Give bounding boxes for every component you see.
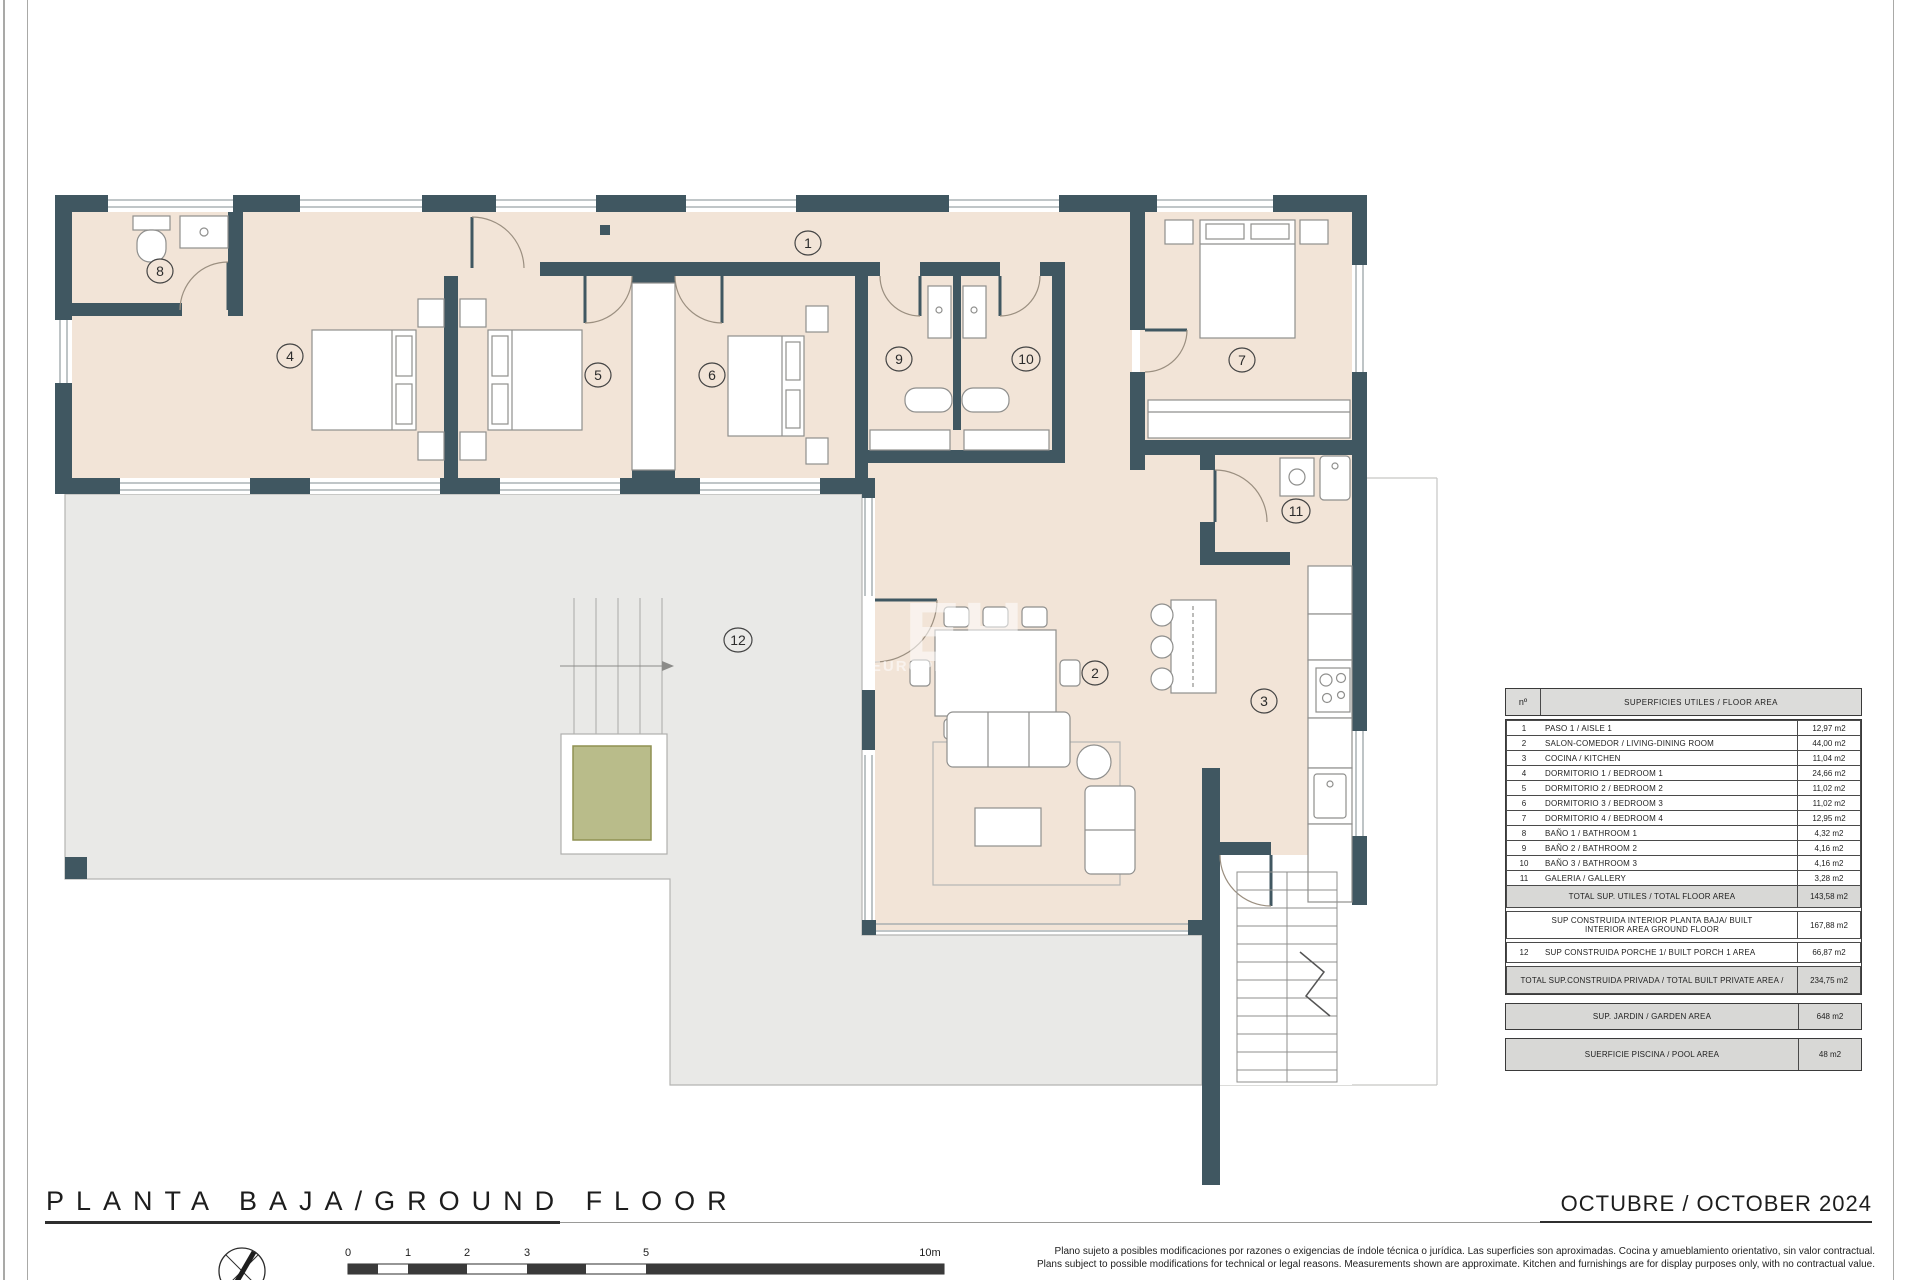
stool [1151, 636, 1173, 658]
nightstand [460, 299, 486, 327]
legend-built-interior: SUP CONSTRUIDA INTERIOR PLANTA BAJA/ BUI… [1506, 911, 1861, 939]
svg-text:11: 11 [1289, 503, 1304, 519]
legend-row: 7DORMITORIO 4 / BEDROOM 412,95 m2 [1506, 810, 1861, 826]
room-marker-6: 6 [699, 363, 725, 387]
window-top-1 [108, 195, 233, 212]
shower-bath10 [964, 430, 1049, 450]
window-top-2 [300, 195, 422, 212]
window-top-4 [686, 195, 796, 212]
glass-door-room6 [700, 478, 820, 494]
scale-label-1: 1 [405, 1247, 411, 1259]
room-marker-9: 9 [886, 347, 912, 371]
legend-total-built-private: TOTAL SUP.CONSTRUIDA PRIVADA / TOTAL BUI… [1506, 966, 1861, 994]
nightstand [1165, 220, 1193, 244]
scale-label-3: 3 [524, 1247, 530, 1259]
terrace-planter [561, 734, 667, 854]
vanity-bath10 [963, 286, 986, 338]
room-marker-10: 10 [1012, 347, 1040, 371]
stove [1316, 668, 1350, 712]
area-legend-table: nº SUPERFICIES UTILES / FLOOR AREA 1PASO… [1505, 688, 1862, 1071]
kitchen-counter [1308, 566, 1352, 902]
scale-label-0: 0 [345, 1247, 351, 1259]
stool [1151, 668, 1173, 690]
room-marker-1: 1 [795, 231, 821, 255]
room-marker-8: 8 [147, 259, 173, 283]
glass-door-room4b [310, 478, 440, 494]
title-rule [45, 1221, 560, 1224]
svg-text:2: 2 [1091, 665, 1099, 681]
legend-header-num: nº [1506, 689, 1541, 715]
scale-label-10: 10m [919, 1247, 940, 1259]
plan-date: OCTUBRE / OCTOBER 2024 [1472, 1191, 1872, 1217]
sink-bath8 [180, 216, 228, 248]
nightstand [806, 306, 828, 332]
vanity-bath9 [928, 286, 951, 338]
compass-icon [219, 1248, 265, 1280]
floor-plan-drawing: 1 2 3 4 5 6 7 8 9 10 11 12 [0, 0, 1920, 1280]
mid-rule [560, 1222, 1540, 1223]
disclaimer-es: Plano sujeto a posibles modificaciones p… [975, 1245, 1875, 1258]
svg-text:12: 12 [730, 632, 746, 648]
legend-row: 4DORMITORIO 1 / BEDROOM 124,66 m2 [1506, 765, 1861, 781]
date-rule [1540, 1221, 1872, 1223]
nightstand [460, 432, 486, 460]
room-marker-5: 5 [585, 363, 611, 387]
page-title: PLANTA BAJA/GROUND FLOOR [46, 1186, 739, 1217]
toilet-bath8 [133, 216, 170, 262]
glass-door-room5 [500, 478, 620, 494]
nightstand [418, 432, 444, 460]
window-room7-right [1352, 265, 1367, 372]
legend-row: 1PASO 1 / AISLE 112,97 m2 [1506, 720, 1861, 736]
coffee-table [975, 808, 1041, 846]
legend-total-floor-area: TOTAL SUP. UTILES / TOTAL FLOOR AREA143,… [1506, 885, 1861, 908]
bed-room5 [488, 330, 582, 430]
svg-text:1: 1 [804, 235, 812, 251]
window-left [55, 320, 72, 383]
shower-bath9 [870, 430, 950, 450]
legend-pool-area: SUERFICIE PISCINA / POOL AREA48 m2 [1505, 1038, 1862, 1071]
washer-galeria [1280, 458, 1314, 496]
svg-text:7: 7 [1238, 352, 1246, 368]
svg-text:8: 8 [156, 263, 164, 279]
svg-text:5: 5 [594, 367, 602, 383]
legend-row: 2SALON-COMEDOR / LIVING-DINING ROOM44,00… [1506, 735, 1861, 751]
legend-built-porch: 12SUP CONSTRUIDA PORCHE 1/ BUILT PORCH 1… [1506, 942, 1861, 963]
toilet-bath9 [905, 388, 952, 412]
legend-header: nº SUPERFICIES UTILES / FLOOR AREA [1505, 688, 1862, 716]
laundry-sink-galeria [1320, 456, 1350, 500]
floor-plan-sheet: 1 2 3 4 5 6 7 8 9 10 11 12 [0, 0, 1920, 1280]
room-marker-11: 11 [1282, 499, 1310, 523]
kitchen-island [1171, 600, 1216, 693]
terrace-pillar [65, 857, 87, 879]
nightstand [418, 299, 444, 327]
wardrobe-room7 [1148, 400, 1350, 438]
side-table [1077, 745, 1111, 779]
legend-row: 10BAÑO 3 / BATHROOM 34,16 m2 [1506, 855, 1861, 871]
legend-row: 5DORMITORIO 2 / BEDROOM 211,02 m2 [1506, 780, 1861, 796]
nightstand [1300, 220, 1328, 244]
disclaimer-text: Plano sujeto a posibles modificaciones p… [975, 1245, 1875, 1271]
scale-label-5: 5 [643, 1247, 649, 1259]
legend-row: 9BAÑO 2 / BATHROOM 24,16 m2 [1506, 840, 1861, 856]
legend-row: 11GALERIA / GALLERY3,28 m2 [1506, 870, 1861, 886]
stool [1151, 604, 1173, 626]
window-top-6 [1157, 195, 1273, 212]
bed-room4 [312, 330, 416, 430]
sofa-small [1085, 786, 1135, 874]
bed-room7 [1200, 220, 1295, 338]
window-top-3 [496, 195, 596, 212]
scale-label-2: 2 [464, 1247, 470, 1259]
svg-text:3: 3 [1260, 693, 1268, 709]
legend-garden-area: SUP. JARDIN / GARDEN AREA648 m2 [1505, 1003, 1862, 1030]
legend-row: 6DORMITORIO 3 / BEDROOM 311,02 m2 [1506, 795, 1861, 811]
svg-text:6: 6 [708, 367, 716, 383]
scale-bar [348, 1264, 944, 1274]
room-marker-7: 7 [1229, 348, 1255, 372]
legend-row: 8BAÑO 1 / BATHROOM 14,32 m2 [1506, 825, 1861, 841]
room-marker-3: 3 [1251, 689, 1277, 713]
glass-door-room4a [120, 478, 250, 494]
bed-room6 [728, 336, 804, 436]
svg-text:4: 4 [286, 348, 294, 364]
svg-text:9: 9 [895, 351, 903, 367]
wardrobe-column [632, 283, 675, 470]
svg-text:10: 10 [1018, 351, 1034, 367]
room-marker-12: 12 [724, 628, 752, 652]
room-marker-2: 2 [1082, 661, 1108, 685]
legend-header-label: SUPERFICIES UTILES / FLOOR AREA [1541, 697, 1861, 708]
room-marker-4: 4 [277, 344, 303, 368]
disclaimer-en: Plans subject to possible modifications … [975, 1258, 1875, 1271]
nightstand [806, 438, 828, 464]
window-kitchen-right [1352, 731, 1367, 836]
dining-table [935, 630, 1056, 716]
toilet-bath10 [962, 388, 1009, 412]
window-top-5 [949, 195, 1059, 212]
legend-row: 3COCINA / KITCHEN11,04 m2 [1506, 750, 1861, 766]
sofa-large [947, 712, 1070, 767]
kitchen-sink [1314, 774, 1346, 818]
